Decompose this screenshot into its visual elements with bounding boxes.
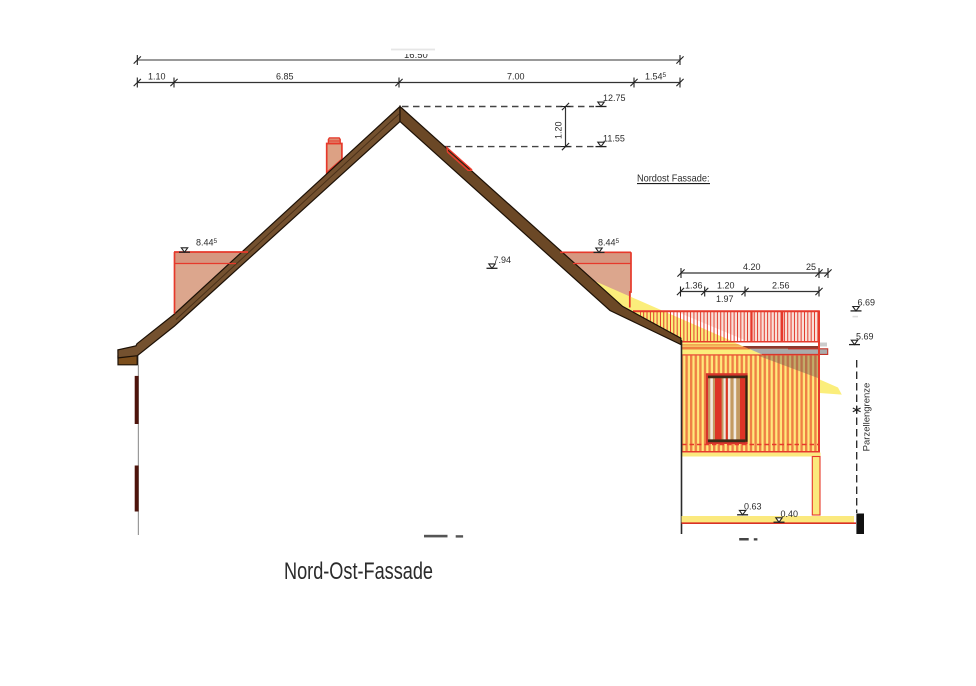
svg-text:Nord-Ost-Fassade: Nord-Ost-Fassade [284,558,433,585]
svg-text:7.00: 7.00 [507,72,525,82]
svg-text:6.69: 6.69 [858,298,876,308]
svg-text:0.63: 0.63 [744,502,762,512]
svg-text:1.10: 1.10 [148,72,166,82]
svg-text:0.40: 0.40 [781,509,799,519]
svg-text:7.94: 7.94 [494,255,512,265]
svg-text:1.20: 1.20 [717,281,735,291]
svg-text:12.75: 12.75 [603,93,626,103]
svg-text:11.55: 11.55 [603,133,625,143]
svg-text:6.85: 6.85 [276,72,294,82]
svg-text:1.97: 1.97 [716,294,734,304]
svg-text:4.20: 4.20 [743,262,761,272]
svg-text:2.56: 2.56 [772,281,790,291]
svg-text:1.36: 1.36 [685,281,703,291]
svg-text:Parzellengrenze: Parzellengrenze [862,383,873,452]
svg-text:Nordost Fassade:: Nordost Fassade: [637,173,710,185]
svg-text:25: 25 [806,262,816,272]
svg-text:5.69: 5.69 [856,331,874,341]
svg-text:1.20: 1.20 [554,121,564,139]
